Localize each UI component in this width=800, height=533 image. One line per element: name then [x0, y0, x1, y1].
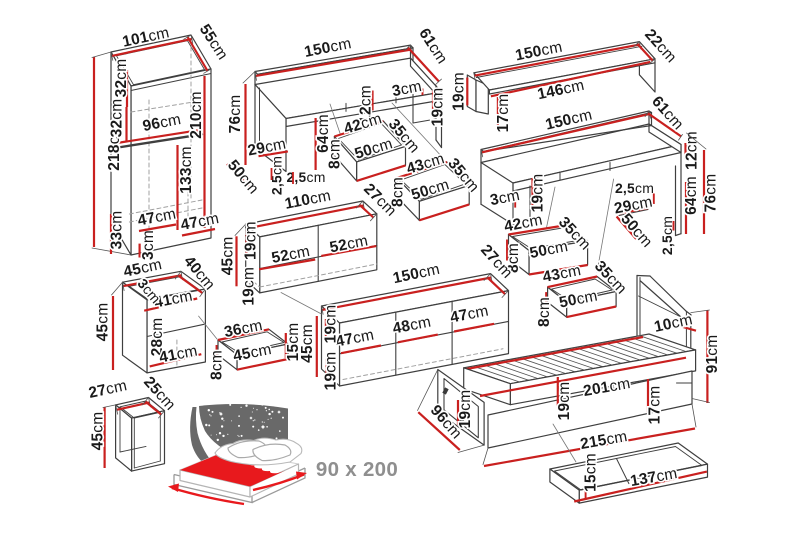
- svg-text:17cm: 17cm: [647, 386, 664, 425]
- svg-text:33cm: 33cm: [109, 211, 126, 250]
- svg-text:76cm: 76cm: [703, 174, 720, 213]
- svg-text:8cm: 8cm: [209, 350, 226, 380]
- svg-text:19cm: 19cm: [240, 267, 257, 306]
- svg-text:19cm: 19cm: [243, 221, 260, 260]
- svg-text:2,5cm: 2,5cm: [659, 216, 675, 255]
- svg-text:133cm: 133cm: [178, 146, 195, 194]
- svg-text:64cm: 64cm: [683, 176, 700, 215]
- svg-text:15cm: 15cm: [583, 453, 600, 492]
- svg-text:45cm: 45cm: [220, 237, 237, 276]
- svg-text:210cm: 210cm: [188, 91, 205, 139]
- svg-text:32cm: 32cm: [113, 59, 130, 98]
- svg-text:17cm: 17cm: [495, 94, 512, 133]
- svg-text:90 x 200: 90 x 200: [316, 458, 398, 481]
- svg-text:76cm: 76cm: [227, 95, 244, 134]
- svg-text:32cm: 32cm: [109, 99, 126, 138]
- svg-text:8cm: 8cm: [327, 139, 344, 169]
- svg-text:45cm: 45cm: [90, 412, 107, 451]
- svg-text:19cm: 19cm: [323, 352, 340, 391]
- svg-text:19cm: 19cm: [429, 88, 446, 127]
- svg-text:12cm: 12cm: [684, 131, 701, 170]
- svg-text:45cm: 45cm: [95, 303, 112, 342]
- svg-text:3cm: 3cm: [140, 230, 157, 260]
- svg-text:8cm: 8cm: [536, 297, 553, 327]
- svg-text:19cm: 19cm: [530, 174, 547, 213]
- svg-text:15cm: 15cm: [285, 323, 302, 362]
- svg-text:19cm: 19cm: [450, 72, 467, 111]
- svg-text:19cm: 19cm: [457, 390, 474, 429]
- svg-text:19cm: 19cm: [556, 382, 573, 421]
- svg-text:91cm: 91cm: [704, 335, 721, 374]
- svg-text:19cm: 19cm: [323, 305, 340, 344]
